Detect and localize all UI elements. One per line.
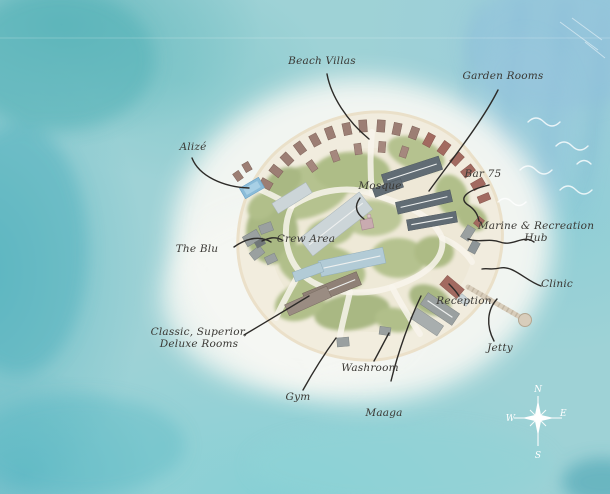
label-alize: Alizé bbox=[179, 141, 206, 153]
label-washroom: Washroom bbox=[341, 362, 399, 374]
compass-west: W bbox=[506, 414, 516, 424]
label-mosque: Mosque bbox=[358, 180, 401, 192]
island-resort-map: N E S W Beach Villas Garden Rooms Alizé … bbox=[0, 0, 610, 494]
label-the-blu: The Blu bbox=[176, 243, 219, 255]
label-classic-superior-deluxe: Classic, Superior, Deluxe Rooms bbox=[151, 326, 248, 350]
label-maaga: Maaga bbox=[365, 407, 402, 419]
label-bar-75: Bar 75 bbox=[465, 168, 502, 180]
label-jetty: Jetty bbox=[487, 342, 513, 354]
compass-east: E bbox=[559, 409, 567, 419]
label-reception: Reception bbox=[436, 295, 491, 307]
compass-north: N bbox=[533, 385, 543, 395]
label-gym: Gym bbox=[286, 391, 311, 403]
label-clinic: Clinic bbox=[541, 278, 573, 290]
label-crew-area: Crew Area bbox=[277, 233, 335, 245]
label-beach-villas: Beach Villas bbox=[288, 55, 356, 67]
compass-south: S bbox=[535, 451, 541, 461]
label-garden-rooms: Garden Rooms bbox=[463, 70, 544, 82]
label-marine-recreation-hub: Marine & Recreation Hub bbox=[478, 220, 594, 244]
